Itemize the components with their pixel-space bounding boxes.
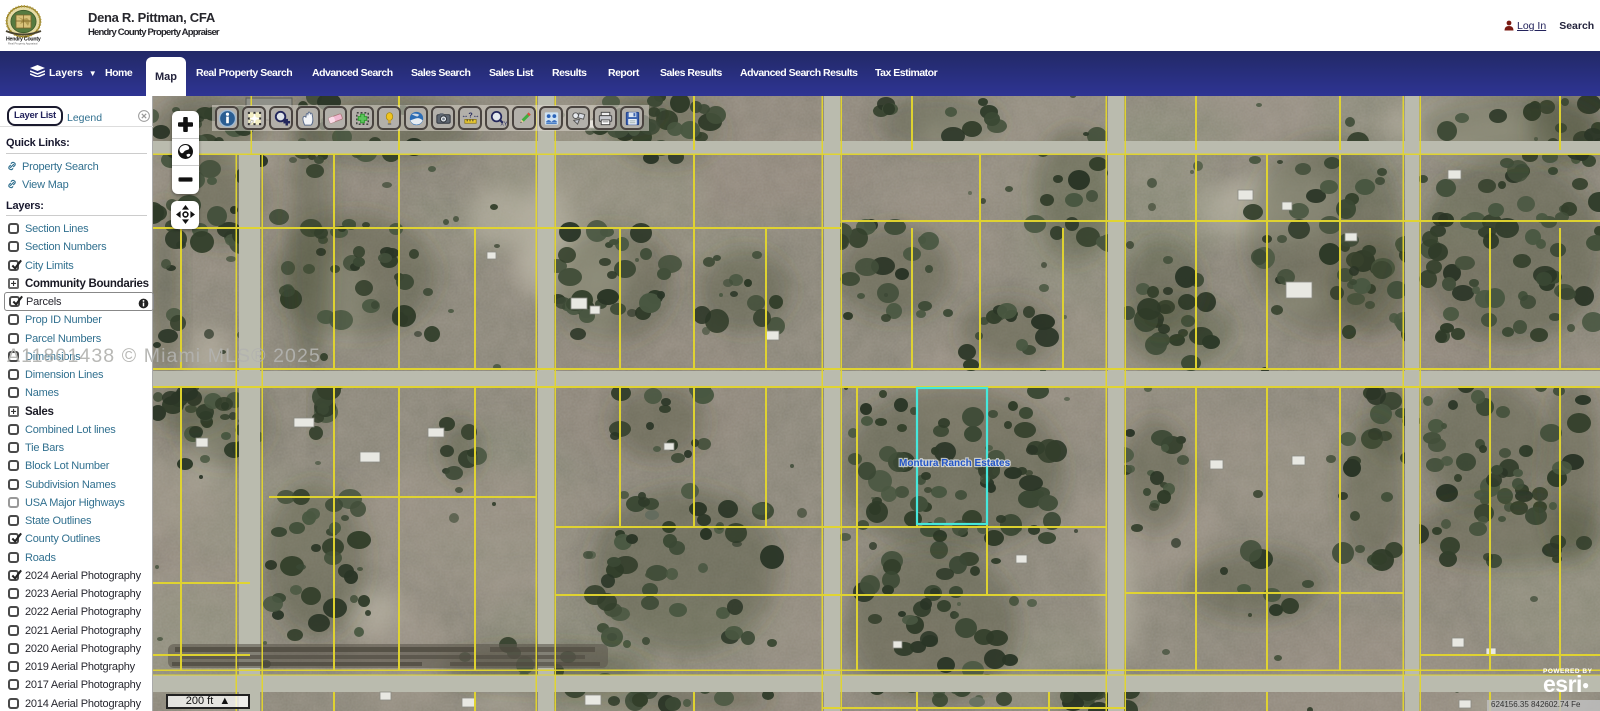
svg-text:↔?↔: ↔?↔ <box>461 111 480 119</box>
svg-text:XY: XY <box>500 121 507 127</box>
svg-text:Real Property Appraisal: Real Property Appraisal <box>8 42 38 46</box>
svg-text:Montura Ranch Estates: Montura Ranch Estates <box>899 458 1011 469</box>
